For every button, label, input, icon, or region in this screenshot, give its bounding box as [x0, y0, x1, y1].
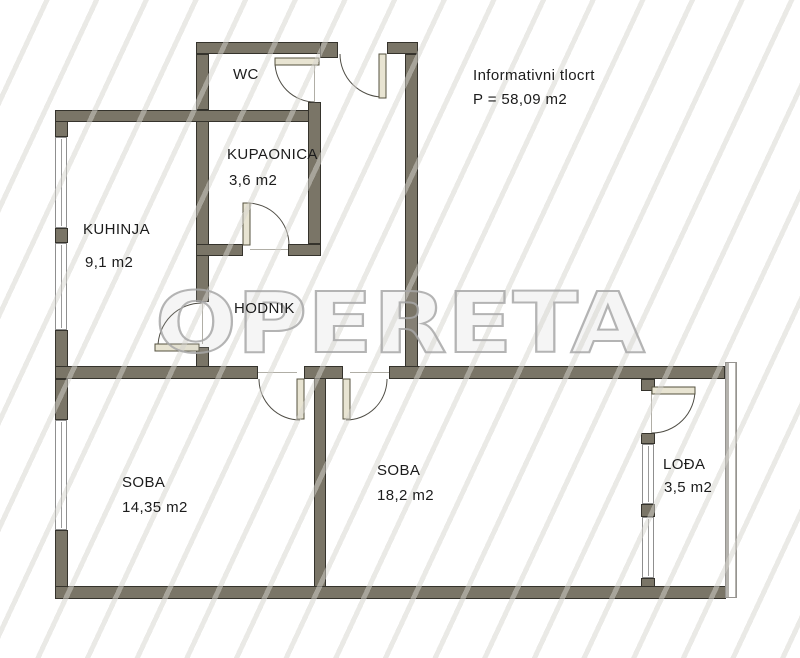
door-arcs — [158, 54, 695, 433]
room-area-kupaonica: 3,6 m2 — [229, 172, 277, 189]
wc-door-leaf — [275, 58, 319, 65]
bathroom-door-leaf — [243, 203, 250, 245]
room-label-hodnik: HODNIK — [234, 300, 295, 317]
bathroom-door-arc — [247, 203, 289, 245]
room-label-kupaonica: KUPAONICA — [227, 146, 318, 163]
room-area-soba2: 18,2 m2 — [377, 487, 434, 504]
room-area-lodja: 3,5 m2 — [664, 479, 712, 496]
room-area-kuhinja: 9,1 m2 — [85, 254, 133, 271]
soba2-door-leaf — [343, 379, 350, 419]
loggia-door-arc — [652, 390, 695, 433]
entrance-door-leaf — [379, 54, 386, 98]
loggia-door-leaf — [652, 387, 695, 394]
room-label-soba1: SOBA — [122, 474, 165, 491]
entrance-door-arc — [340, 54, 383, 97]
soba1-door-arc — [259, 379, 300, 420]
room-label-wc: WC — [233, 66, 259, 83]
soba1-door-leaf — [297, 379, 304, 419]
soba2-door-arc — [346, 379, 387, 420]
door-leaves — [155, 54, 695, 419]
room-area-soba1: 14,35 m2 — [122, 499, 188, 516]
wc-door-arc — [275, 62, 315, 102]
floor-plan: OPERETA Informativni tlocrt P = 58,09 m2… — [0, 0, 800, 658]
room-label-kuhinja: KUHINJA — [83, 221, 150, 238]
kitchen-door-leaf — [155, 344, 199, 351]
plan-info: Informativni tlocrt P = 58,09 m2 — [473, 64, 595, 112]
plan-info-area: P = 58,09 m2 — [473, 88, 595, 112]
opening-lines — [203, 62, 652, 433]
room-label-soba2: SOBA — [377, 462, 420, 479]
kitchen-door-arc — [158, 303, 202, 347]
room-label-lodja: LOĐA — [663, 456, 705, 473]
plan-info-title: Informativni tlocrt — [473, 64, 595, 88]
doors-layer — [0, 0, 800, 658]
